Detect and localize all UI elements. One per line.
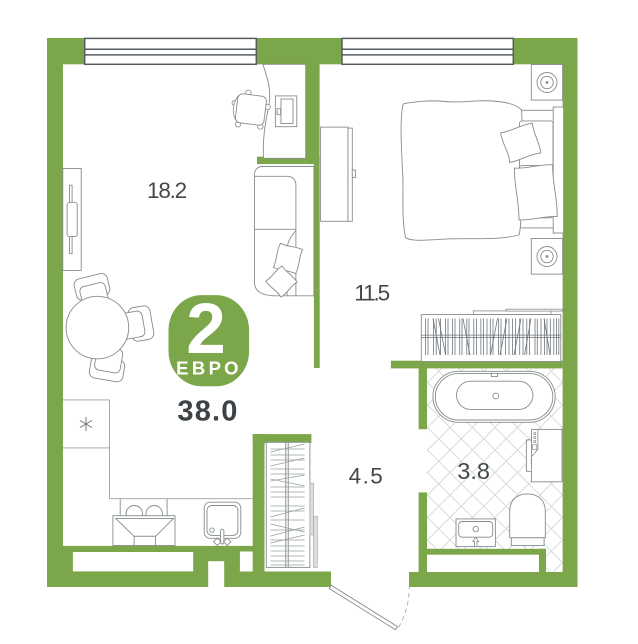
svg-text:ЕВРО: ЕВРО: [176, 357, 242, 378]
svg-text:4.5: 4.5: [349, 463, 384, 488]
svg-text:18.2: 18.2: [147, 178, 187, 203]
svg-text:11.5: 11.5: [354, 280, 389, 305]
svg-text:3.8: 3.8: [457, 458, 490, 484]
svg-text:38.0: 38.0: [177, 396, 238, 428]
